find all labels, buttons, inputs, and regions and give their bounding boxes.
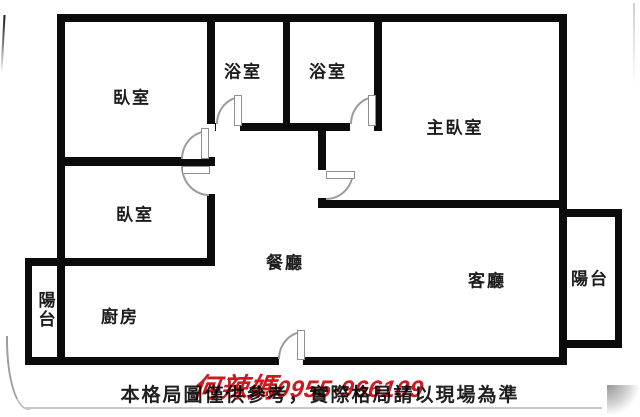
room-label-bedroom-2: 臥室: [116, 201, 154, 226]
wall-bathroom-divider: [283, 14, 290, 131]
page-edge-right-line: [633, 3, 635, 88]
room-label-balcony-right: 陽台: [571, 265, 609, 290]
floor-plan-page: 臥室 浴室 浴室 主臥室 臥室 餐廳 客廳 廚房 陽台 陽台 本格局圖僅供參考，…: [0, 0, 640, 417]
page-edge-left-line: [0, 15, 5, 73]
room-label-bathroom-1: 浴室: [224, 58, 262, 83]
wall-bedroom1-right-upper: [207, 14, 215, 124]
wall-right-balcony-top: [563, 209, 622, 217]
agent-watermark: 何辣媽 0955-966109: [190, 366, 426, 405]
room-label-bathroom-2: 浴室: [309, 58, 347, 83]
room-label-dining-room: 餐廳: [266, 249, 304, 274]
door-leaf-bathroom2: [368, 95, 376, 126]
wall-right-balcony-bottom: [563, 340, 622, 348]
wall-left: [57, 14, 65, 365]
door-leaf-entrance: [297, 330, 305, 360]
door-leaf-bedroom1: [201, 128, 209, 159]
wall-right-balcony-right: [615, 209, 622, 348]
door-leaf-master: [326, 171, 355, 179]
agent-phone: 0955-966109: [274, 376, 425, 404]
door-leaf-bathroom1: [234, 95, 242, 126]
wall-bedroom2-right-lower: [207, 194, 215, 266]
wall-right: [559, 14, 567, 365]
page-edge-bottom-line: [24, 407, 602, 409]
wall-master-bottom: [318, 200, 564, 208]
door-leaf-bedroom2: [182, 166, 210, 174]
wall-bedroom2-bottom: [25, 258, 215, 266]
room-label-living-room: 客廳: [468, 267, 506, 292]
room-label-master-bedroom: 主臥室: [427, 114, 484, 139]
room-label-bedroom-1: 臥室: [113, 84, 151, 109]
agent-name: 何辣媽: [190, 366, 279, 405]
room-label-balcony-left: 陽台: [33, 291, 58, 329]
page-curl-bottom-right: [607, 385, 639, 415]
wall-top: [57, 14, 567, 22]
room-label-kitchen: 廚房: [101, 303, 139, 328]
